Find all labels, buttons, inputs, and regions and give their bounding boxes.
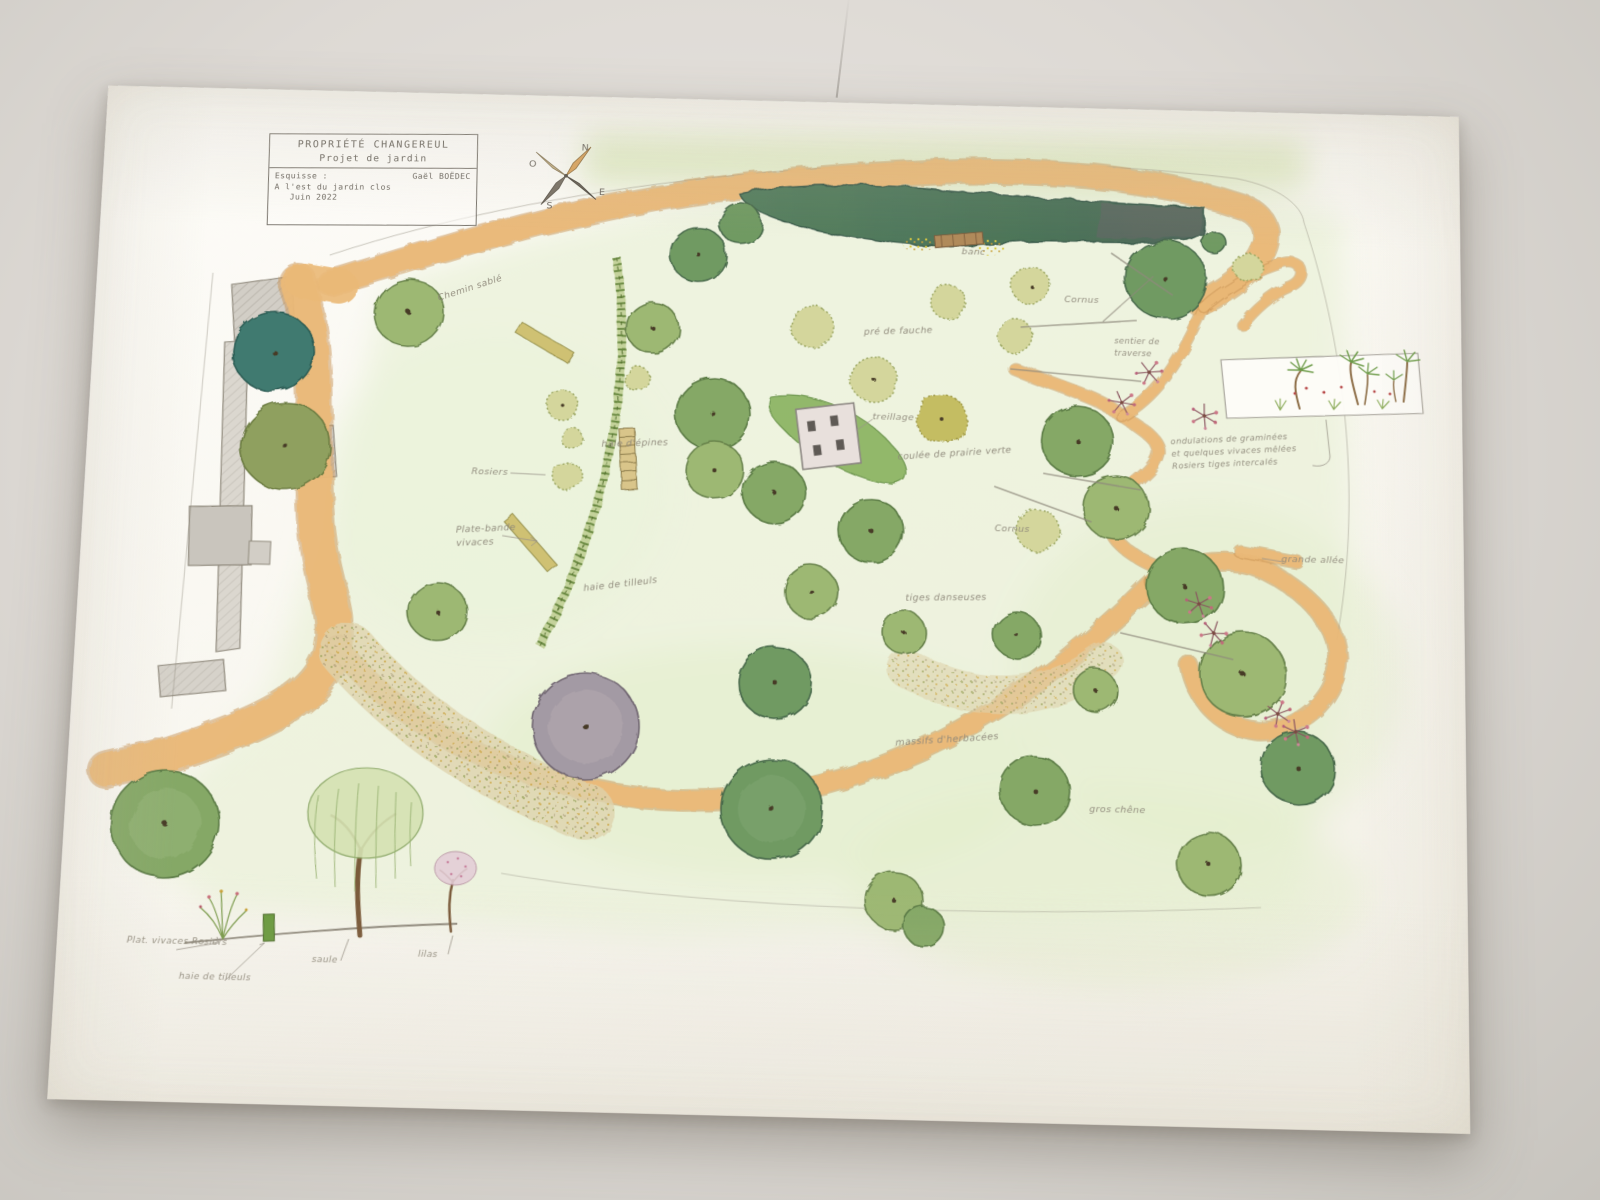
annotation-rosiers: Rosiers <box>471 465 508 479</box>
photo-scene: N O E S <box>0 0 1600 1200</box>
compass-west-label: O <box>529 159 537 170</box>
annotation-cornus-haut: Cornus <box>1064 294 1099 308</box>
annotation-haie-epines: haie d'épines <box>601 436 668 451</box>
project-title: Projet de jardin <box>273 154 473 165</box>
author-name: Gaël BOËDEC <box>412 172 470 181</box>
annotation-sentier: sentier de traverse <box>1114 336 1159 361</box>
backdrop-corner-crease <box>836 0 851 98</box>
house <box>796 403 861 469</box>
annotation-grande-allee: grande allée <box>1281 553 1344 568</box>
compass-east-label: E <box>599 187 605 198</box>
compass-north-label: N <box>581 143 589 153</box>
annotation-banc: banc <box>962 246 986 260</box>
property-name: PROPRIÉTÉ CHANGEREUL <box>274 139 474 151</box>
annotation-gros-chene: gros chêne <box>1089 803 1145 818</box>
compass-south-label: S <box>546 201 552 212</box>
annotation-plate-bande: Plate-bande vivaces <box>456 521 517 551</box>
title-block: PROPRIÉTÉ CHANGEREUL Projet de jardin Es… <box>267 133 479 226</box>
garden-plan-drawing: N O E S <box>47 86 1470 1134</box>
legend-lilas: lilas <box>418 950 438 960</box>
annotation-tiges-danseuses: tiges danseuses <box>905 591 986 606</box>
annotation-cornus-bas: Cornus <box>995 523 1030 537</box>
location-note: A l'est du jardin clos <box>274 183 470 193</box>
legend-saule: saule <box>312 955 338 966</box>
annotation-ondulations: ondulations de graminées et quelques viv… <box>1170 431 1298 473</box>
sketch-label: Esquisse : <box>275 172 328 181</box>
legend-haie-tilleuls: haie de tilleuls <box>179 972 252 984</box>
annotation-treillage: treillage <box>872 411 914 425</box>
plan-date: Juin 2022 <box>274 193 470 203</box>
annotation-pre-de-fauche: pré de fauche <box>864 324 933 339</box>
garden-plan-paper: N O E S <box>47 86 1470 1134</box>
